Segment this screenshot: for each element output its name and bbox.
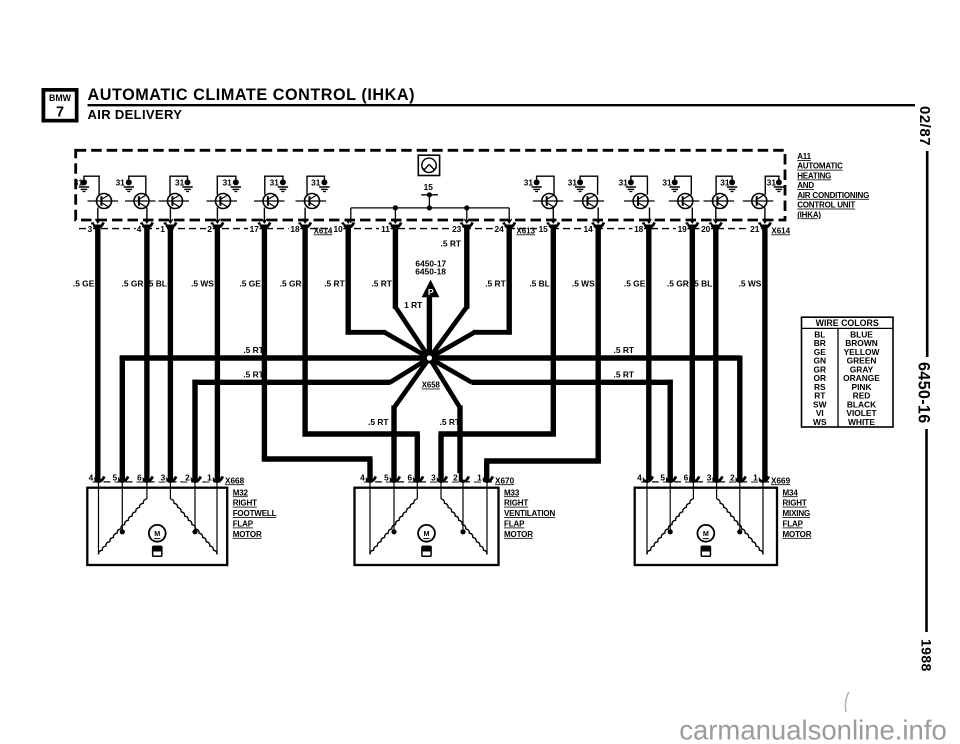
svg-text:10: 10 (333, 224, 343, 234)
svg-text:31: 31 (568, 178, 578, 188)
svg-text:2: 2 (453, 473, 458, 483)
svg-text:.5 RT: .5 RT (243, 345, 264, 355)
svg-text:31: 31 (662, 178, 672, 188)
svg-text:X614: X614 (771, 226, 790, 235)
svg-text:2: 2 (207, 224, 212, 234)
svg-text:MOTOR: MOTOR (504, 530, 533, 539)
svg-text:19: 19 (678, 224, 688, 234)
svg-text:15: 15 (539, 224, 549, 234)
svg-text:.5 BL: .5 BL (529, 279, 549, 289)
svg-text:02/87: 02/87 (916, 106, 933, 146)
svg-text:3: 3 (707, 473, 712, 483)
svg-text:5: 5 (660, 473, 665, 483)
svg-text:.5 RT: .5 RT (440, 417, 461, 427)
svg-text:.5 GE: .5 GE (239, 279, 261, 289)
svg-text:MIXING: MIXING (783, 509, 811, 518)
svg-text:.5 RT: .5 RT (485, 279, 506, 289)
svg-text:.5 RT: .5 RT (324, 279, 345, 289)
svg-text:VENTILATION: VENTILATION (504, 509, 555, 518)
svg-text:31: 31 (116, 178, 126, 188)
svg-text:3: 3 (88, 224, 93, 234)
svg-text:FOOTWELL: FOOTWELL (233, 509, 277, 518)
svg-text:5: 5 (112, 473, 117, 483)
svg-text:X668: X668 (225, 476, 245, 485)
svg-text:1988: 1988 (919, 639, 935, 672)
svg-text:3: 3 (161, 473, 166, 483)
svg-text:X658: X658 (422, 381, 441, 390)
svg-text:3: 3 (431, 473, 436, 483)
svg-text:.5 RT: .5 RT (243, 370, 264, 380)
svg-text:5: 5 (384, 473, 389, 483)
svg-text:1: 1 (207, 473, 212, 483)
svg-text:1: 1 (753, 473, 758, 483)
svg-text:18: 18 (634, 224, 644, 234)
svg-text:AIR CONDITIONING: AIR CONDITIONING (797, 191, 869, 200)
svg-text:RIGHT: RIGHT (783, 499, 807, 508)
svg-text:7: 7 (56, 105, 64, 121)
svg-text:AUTOMATIC CLIMATE CONTROL (IHK: AUTOMATIC CLIMATE CONTROL (IHKA) (88, 86, 416, 104)
svg-text:FLAP: FLAP (783, 520, 804, 529)
svg-text:CONTROL UNIT: CONTROL UNIT (797, 201, 855, 210)
svg-text:.5 WS: .5 WS (191, 279, 214, 289)
svg-text:(IHKA): (IHKA) (797, 210, 821, 219)
svg-text:MOTOR: MOTOR (233, 530, 262, 539)
svg-text:HEATING: HEATING (797, 171, 831, 180)
svg-text:18: 18 (290, 224, 300, 234)
svg-text:31: 31 (175, 178, 185, 188)
svg-text:31: 31 (74, 178, 84, 188)
svg-text:31: 31 (524, 178, 534, 188)
svg-text:31: 31 (619, 178, 629, 188)
svg-text:11: 11 (381, 224, 390, 234)
svg-text:.5 GR: .5 GR (122, 279, 144, 289)
svg-text:M32: M32 (233, 488, 249, 497)
svg-text:2: 2 (185, 473, 190, 483)
svg-text:.5 RT: .5 RT (614, 370, 635, 380)
svg-text:6: 6 (684, 473, 689, 483)
svg-text:P: P (428, 287, 434, 297)
svg-text:RIGHT: RIGHT (233, 499, 257, 508)
svg-text:31: 31 (270, 178, 280, 188)
svg-text:.5 RT: .5 RT (441, 239, 462, 249)
svg-text:AUTOMATIC: AUTOMATIC (797, 162, 843, 171)
svg-text:X670: X670 (495, 476, 515, 485)
svg-text:14: 14 (583, 224, 593, 234)
svg-text:31: 31 (720, 178, 730, 188)
svg-text:1: 1 (160, 224, 165, 234)
svg-text:A11: A11 (797, 152, 811, 161)
svg-text:.5 GR: .5 GR (667, 279, 689, 289)
svg-text:M33: M33 (504, 488, 520, 497)
svg-text:1 RT: 1 RT (404, 300, 423, 310)
svg-text:15: 15 (424, 182, 434, 192)
svg-text:WS: WS (813, 417, 827, 427)
svg-text:.5 WS: .5 WS (739, 279, 762, 289)
svg-text:X614: X614 (314, 226, 333, 235)
svg-text:4: 4 (360, 473, 365, 483)
svg-text:21: 21 (750, 224, 760, 234)
svg-text:WHITE: WHITE (848, 417, 875, 427)
svg-text:M: M (703, 529, 709, 538)
svg-text:FLAP: FLAP (233, 520, 254, 529)
svg-text:6450-18: 6450-18 (415, 267, 446, 277)
svg-text:31: 31 (223, 178, 233, 188)
svg-text:BMW: BMW (49, 93, 72, 103)
svg-text:.5 RT: .5 RT (371, 279, 392, 289)
svg-text:AIR DELIVERY: AIR DELIVERY (88, 107, 183, 122)
svg-text:.5 GE: .5 GE (624, 279, 646, 289)
svg-text:6: 6 (407, 473, 412, 483)
svg-text:carmanualsonline.info: carmanualsonline.info (679, 715, 947, 744)
svg-text:6450-16: 6450-16 (915, 362, 933, 424)
svg-text:6: 6 (137, 473, 142, 483)
svg-text:1: 1 (477, 473, 482, 483)
svg-text:31: 31 (311, 178, 321, 188)
svg-text:4: 4 (137, 224, 142, 234)
svg-text:.5 RT: .5 RT (614, 345, 635, 355)
svg-text:.5 GE: .5 GE (73, 279, 95, 289)
svg-text:MOTOR: MOTOR (783, 530, 812, 539)
svg-text:20: 20 (701, 224, 711, 234)
svg-text:X669: X669 (771, 476, 791, 485)
svg-text:RIGHT: RIGHT (504, 499, 528, 508)
svg-text:24: 24 (494, 224, 504, 234)
svg-text:17: 17 (250, 224, 260, 234)
svg-text:.5 WS: .5 WS (572, 279, 595, 289)
svg-text:M34: M34 (783, 488, 799, 497)
svg-text:M: M (154, 529, 160, 538)
svg-text:23: 23 (452, 224, 462, 234)
svg-text:.5 GR: .5 GR (280, 279, 302, 289)
svg-text:31: 31 (767, 178, 777, 188)
svg-text:2: 2 (730, 473, 735, 483)
svg-text:X613: X613 (516, 226, 535, 235)
svg-text:4: 4 (637, 473, 642, 483)
svg-text:FLAP: FLAP (504, 520, 525, 529)
svg-text:AND: AND (797, 181, 814, 190)
svg-text:.5 RT: .5 RT (368, 417, 389, 427)
svg-text:WIRE COLORS: WIRE COLORS (816, 318, 879, 328)
svg-text:M: M (424, 529, 430, 538)
svg-text:4: 4 (89, 473, 94, 483)
